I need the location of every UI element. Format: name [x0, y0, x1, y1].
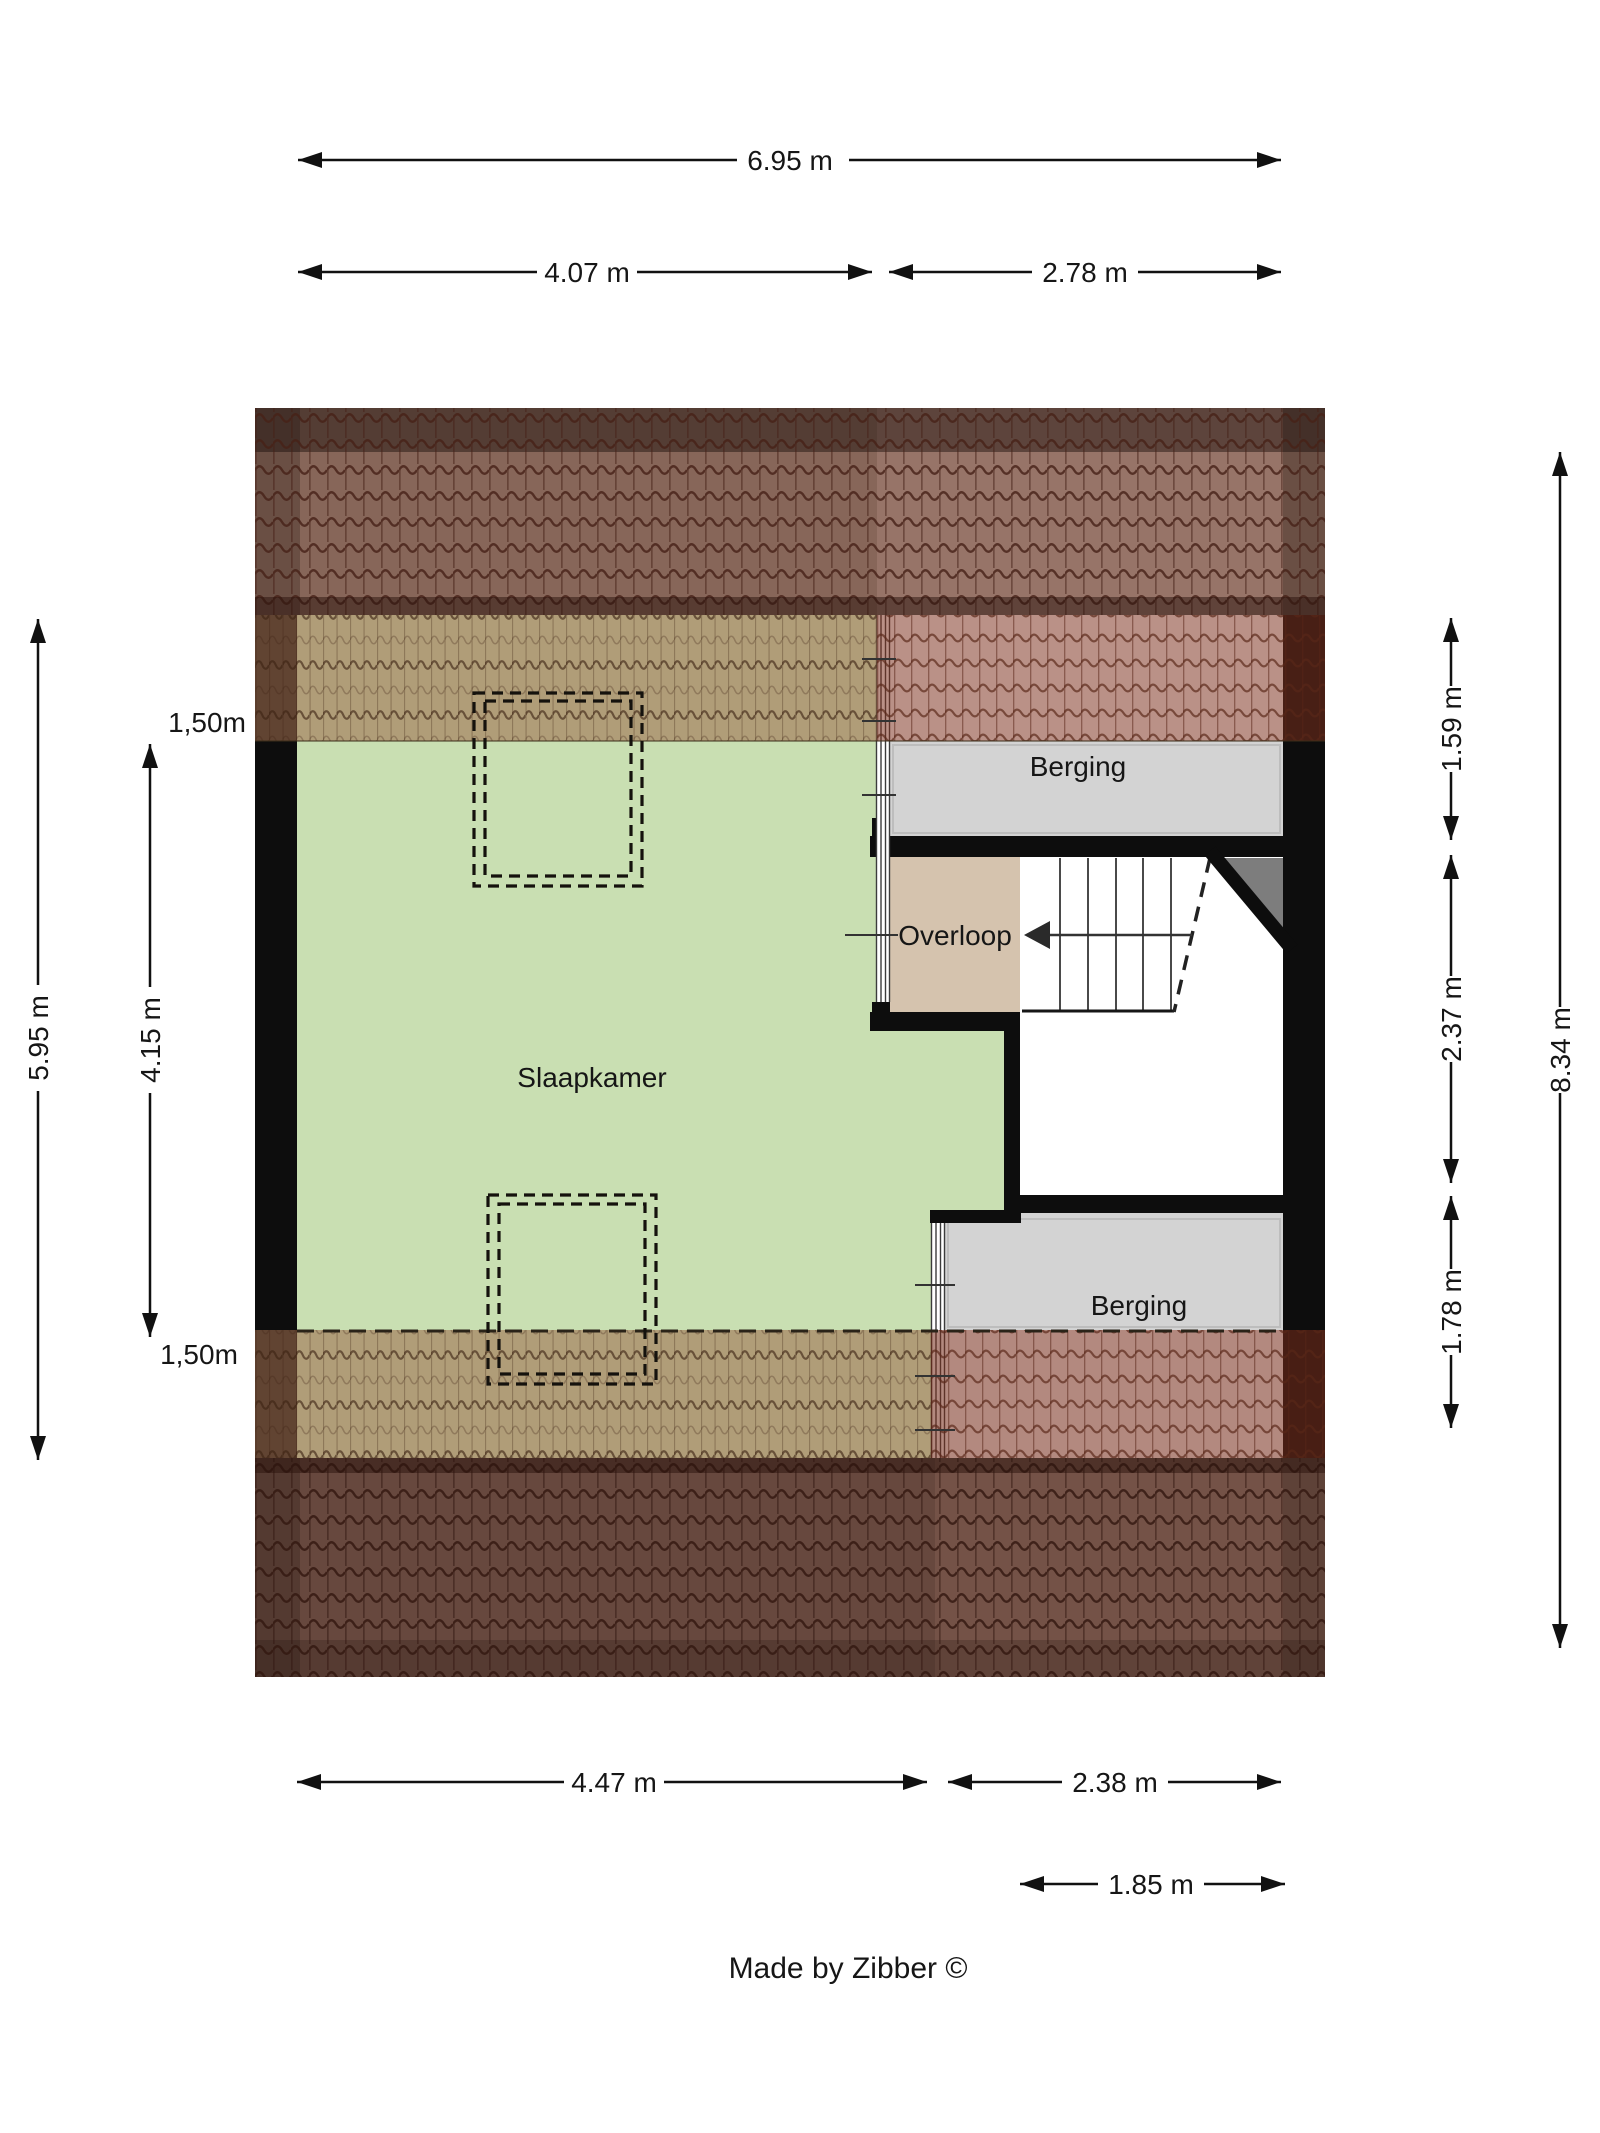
svg-text:Overloop: Overloop [898, 920, 1012, 951]
svg-text:1.78 m: 1.78 m [1436, 1269, 1467, 1355]
svg-text:Berging: Berging [1030, 751, 1127, 782]
svg-text:2.38 m: 2.38 m [1072, 1767, 1158, 1798]
svg-text:4.47 m: 4.47 m [571, 1767, 657, 1798]
svg-text:1.59 m: 1.59 m [1436, 686, 1467, 772]
svg-text:5.95 m: 5.95 m [23, 995, 54, 1081]
svg-text:Berging: Berging [1091, 1290, 1188, 1321]
svg-text:6.95 m: 6.95 m [747, 145, 833, 176]
svg-text:2.37 m: 2.37 m [1436, 976, 1467, 1062]
svg-text:1.85 m: 1.85 m [1108, 1869, 1194, 1900]
svg-text:8.34 m: 8.34 m [1545, 1007, 1576, 1093]
svg-text:1,50m: 1,50m [168, 707, 246, 738]
svg-text:1,50m: 1,50m [160, 1339, 238, 1370]
svg-text:Made by Zibber ©: Made by Zibber © [729, 1952, 968, 1985]
svg-text:4.07 m: 4.07 m [544, 257, 630, 288]
svg-text:2.78 m: 2.78 m [1042, 257, 1128, 288]
svg-text:4.15 m: 4.15 m [135, 997, 166, 1083]
svg-text:Slaapkamer: Slaapkamer [517, 1062, 666, 1093]
